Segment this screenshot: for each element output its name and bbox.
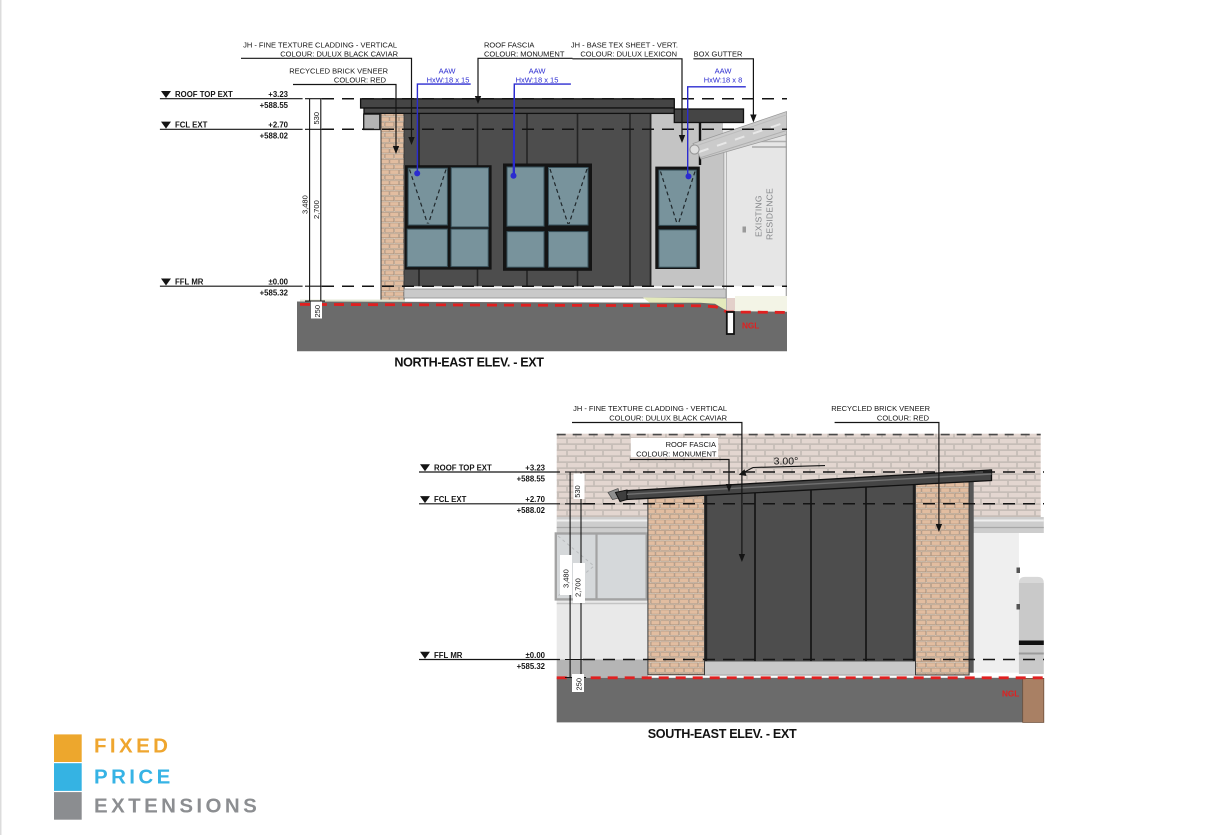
svg-text:250: 250 [313, 305, 322, 318]
svg-text:+585.32: +585.32 [517, 662, 546, 671]
svg-text:3,480: 3,480 [561, 569, 570, 588]
svg-text:±0.00: ±0.00 [526, 651, 546, 660]
svg-text:2,700: 2,700 [312, 200, 321, 219]
svg-text:+588.02: +588.02 [260, 132, 289, 141]
svg-text:+588.55: +588.55 [517, 474, 546, 483]
svg-text:SOUTH-EAST ELEV. - EXT: SOUTH-EAST ELEV. - EXT [648, 727, 797, 741]
svg-text:250: 250 [574, 678, 583, 691]
svg-text:+3.23: +3.23 [268, 90, 288, 99]
svg-text:FCL EXT: FCL EXT [175, 121, 208, 130]
svg-text:ROOF TOP EXT: ROOF TOP EXT [434, 463, 492, 472]
svg-text:2,700: 2,700 [573, 578, 582, 597]
svg-text:±0.00: ±0.00 [269, 278, 289, 287]
svg-text:+3.23: +3.23 [525, 463, 545, 472]
svg-text:ROOF FASCIA: ROOF FASCIA [484, 41, 534, 50]
svg-text:COLOUR: DULUX BLACK CAVIAR: COLOUR: DULUX BLACK CAVIAR [609, 414, 727, 423]
svg-text:COLOUR: RED: COLOUR: RED [877, 414, 930, 423]
svg-text:COLOUR: MONUMENT: COLOUR: MONUMENT [484, 50, 565, 59]
svg-text:530: 530 [312, 112, 321, 125]
svg-text:BOX GUTTER: BOX GUTTER [694, 50, 743, 59]
svg-text:3,480: 3,480 [301, 195, 310, 214]
svg-text:530: 530 [573, 485, 582, 498]
svg-text:+2.70: +2.70 [525, 495, 545, 504]
svg-text:FFL MR: FFL MR [434, 651, 463, 660]
svg-text:NORTH-EAST ELEV. - EXT: NORTH-EAST ELEV. - EXT [394, 356, 544, 370]
svg-text:EXTENSIONS: EXTENSIONS [94, 795, 260, 818]
svg-text:FFL MR: FFL MR [175, 278, 204, 287]
svg-text:AAW: AAW [439, 67, 457, 76]
svg-text:+588.55: +588.55 [260, 101, 289, 110]
svg-text:COLOUR: DULUX BLACK CAVIAR: COLOUR: DULUX BLACK CAVIAR [280, 50, 398, 59]
svg-text:HxW:18 x 8: HxW:18 x 8 [704, 76, 743, 85]
svg-text:RECYCLED BRICK VENEER: RECYCLED BRICK VENEER [289, 67, 388, 76]
svg-text:+588.02: +588.02 [517, 506, 546, 515]
svg-text:JH - FINE TEXTURE CLADDING - V: JH - FINE TEXTURE CLADDING - VERTICAL [573, 404, 727, 413]
svg-text:AAW: AAW [715, 67, 733, 76]
svg-text:ROOF TOP EXT: ROOF TOP EXT [175, 90, 233, 99]
svg-text:ROOF FASCIA: ROOF FASCIA [666, 440, 716, 449]
svg-text:FIXED: FIXED [94, 735, 171, 758]
svg-text:COLOUR: DULUX LEXICON: COLOUR: DULUX LEXICON [580, 50, 677, 59]
svg-text:COLOUR: MONUMENT: COLOUR: MONUMENT [636, 450, 717, 459]
svg-text:HxW:18 x 15: HxW:18 x 15 [516, 76, 559, 85]
svg-text:PRICE: PRICE [94, 766, 174, 789]
svg-text:+585.32: +585.32 [260, 289, 289, 298]
svg-text:JH - BASE TEX SHEET - VERT.: JH - BASE TEX SHEET - VERT. [571, 41, 678, 50]
svg-text:JH - FINE TEXTURE CLADDING - V: JH - FINE TEXTURE CLADDING - VERTICAL [243, 41, 397, 50]
svg-text:AAW: AAW [529, 67, 547, 76]
svg-text:NGL: NGL [1002, 690, 1019, 699]
svg-text:COLOUR: RED: COLOUR: RED [334, 76, 387, 85]
svg-text:NGL: NGL [742, 322, 759, 331]
svg-text:3.00°: 3.00° [774, 456, 799, 468]
svg-text:+2.70: +2.70 [268, 121, 288, 130]
svg-text:FCL EXT: FCL EXT [434, 495, 467, 504]
svg-text:EXISTING: EXISTING [754, 195, 764, 237]
svg-text:HxW:18 x 15: HxW:18 x 15 [427, 76, 470, 85]
svg-text:RECYCLED BRICK VENEER: RECYCLED BRICK VENEER [831, 404, 930, 413]
svg-text:RESIDENCE: RESIDENCE [765, 188, 775, 240]
